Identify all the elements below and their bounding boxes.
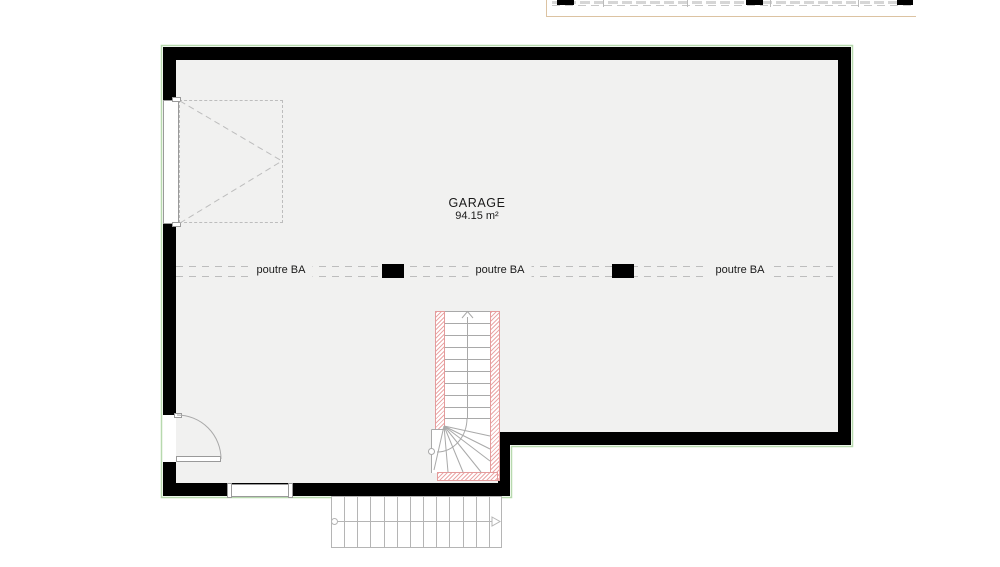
room-area: 94.15 m²: [455, 210, 498, 222]
stair-insulation-left: [435, 311, 445, 430]
stair-winder-area: [431, 429, 490, 473]
strip-post: [897, 0, 913, 5]
window: [231, 484, 289, 497]
wall-bottom-left: [163, 483, 510, 496]
garage-door-jamb: [172, 97, 181, 102]
floor-plan-canvas: { "plan": { "room": { "name": "GARAGE", …: [0, 0, 1000, 567]
exterior-stair-tread: [449, 497, 450, 547]
garage-door-jamb: [172, 222, 181, 227]
room-name: GARAGE: [448, 196, 505, 210]
exterior-stair-tread: [370, 497, 371, 547]
garage-door-panel: [163, 100, 179, 224]
exterior-stair-tread: [384, 497, 385, 547]
strip-tick: [770, 0, 771, 7]
exterior-stair-tread: [463, 497, 464, 547]
beam-label: poutre BA: [469, 264, 532, 277]
wall-left-middle: [163, 224, 176, 415]
stair-insulation-bottom: [437, 472, 498, 481]
exterior-stair-tread: [476, 497, 477, 547]
strip-post: [557, 0, 574, 5]
stair-walk-line: [467, 317, 468, 418]
garage-door-swing-extent: [179, 100, 283, 223]
strip-post: [746, 0, 763, 5]
stair-tread: [445, 311, 490, 312]
beam-label: poutre BA: [250, 264, 313, 277]
wall-top: [163, 47, 851, 60]
exterior-stair-tread: [410, 497, 411, 547]
strip-left-edge-line: [546, 0, 547, 17]
exterior-stair-tread: [436, 497, 437, 547]
beam-label: poutre BA: [709, 264, 772, 277]
door-swing-arc: [177, 415, 221, 459]
strip-dash-line: [552, 5, 914, 6]
wall-bottom-right: [498, 432, 851, 445]
exterior-stair-tread: [357, 497, 358, 547]
concrete-post: [612, 264, 634, 278]
strip-bottom-line: [546, 16, 916, 17]
exterior-stair-tread: [423, 497, 424, 547]
exterior-stair-tread: [397, 497, 398, 547]
exterior-stair-tread: [489, 497, 490, 547]
strip-tick: [687, 0, 688, 7]
concrete-post: [382, 264, 404, 278]
stair-tread: [445, 418, 490, 419]
wall-right: [838, 47, 851, 445]
wall-left-upper: [163, 47, 176, 100]
strip-tick: [603, 0, 604, 7]
door-leaf: [176, 456, 221, 462]
stair-insulation-right: [490, 311, 500, 481]
door-jamb: [174, 413, 182, 418]
strip-tick: [858, 0, 859, 7]
exterior-stair-tread: [344, 497, 345, 547]
strip-wall-dashes: [552, 1, 914, 4]
